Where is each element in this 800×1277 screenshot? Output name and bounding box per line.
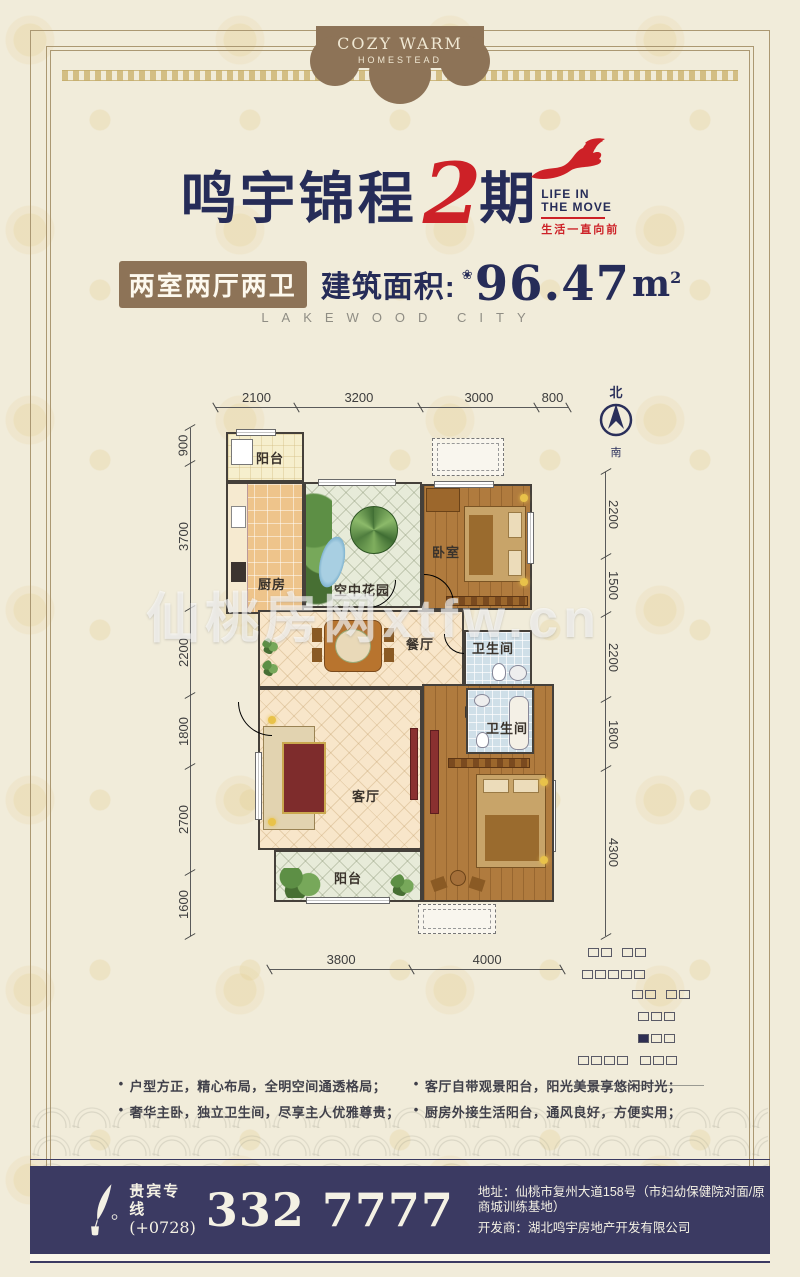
pillow — [508, 512, 522, 538]
site-plan — [578, 948, 710, 1086]
tv-cabinet — [410, 728, 418, 800]
title-side: LIFE IN THE MOVE 生活一直向前 — [541, 145, 619, 243]
feature-item: •厨房外接生活阳台，通风良好，方便实用； — [414, 1102, 682, 1121]
dim-left: 900 3700 2200 1800 2700 1600 — [170, 428, 196, 936]
subtitle-en: LAKEWOOD CITY — [0, 310, 800, 325]
bedside-lamp — [520, 494, 528, 502]
dim-label: 4300 — [606, 838, 621, 867]
room-label: 卧室 — [432, 542, 460, 561]
dim-label: 3000 — [421, 390, 537, 412]
dresser — [426, 488, 460, 512]
compass-north-label: 北 — [592, 382, 640, 401]
ac-unit-bottom — [418, 904, 496, 934]
chair — [430, 876, 447, 892]
blanket — [469, 515, 493, 575]
quill-icon — [88, 1175, 119, 1245]
dim-label: 2700 — [176, 805, 191, 834]
badge-line1: COZY WARM — [316, 26, 484, 53]
pillow — [483, 779, 509, 793]
phone-number: 332 7777 — [206, 1183, 454, 1237]
dim-label: 2200 — [606, 500, 621, 529]
floor-lamp — [268, 818, 276, 826]
balcony-plants — [278, 868, 322, 898]
blanket — [485, 815, 539, 861]
dim-label: 3700 — [176, 522, 191, 551]
garden-pinwheel-plant — [350, 506, 398, 554]
address-line: 地址：仙桃市复州大道158号（市妇幼保健院对面/原商城训练基地） — [478, 1185, 770, 1215]
dim-bottom: 3800 4000 — [270, 952, 562, 974]
area-unit-sup: 2 — [670, 268, 681, 287]
badge-line2: HOMESTEAD — [316, 55, 484, 65]
dim-label: 900 — [175, 435, 190, 457]
layout-badge: 两室两厅两卫 — [119, 261, 307, 308]
bed — [464, 506, 526, 582]
washbasin — [474, 694, 490, 707]
bedside-lamp — [540, 856, 548, 864]
room-label: 阳台 — [334, 868, 362, 887]
title-row: 鸣宇锦程 2 期 LIFE IN THE MOVE 生活一直向前 — [0, 148, 800, 240]
vip-label: 贵宾专线 — [129, 1183, 196, 1219]
area-value: 96.47 — [475, 256, 630, 312]
feature-list: •户型方正，精心布局，全明空间通透格局； •奢华主卧，独立卫生间，尽享主人优雅尊… — [0, 1076, 800, 1121]
brand-badge: COZY WARM HOMESTEAD — [316, 26, 484, 68]
site-row — [582, 970, 645, 979]
ac-unit-top — [432, 438, 504, 476]
kitchen-sink — [231, 506, 246, 528]
dim-top: 2100 3200 3000 800 — [216, 390, 568, 412]
pillow — [513, 779, 539, 793]
dim-label: 3800 — [270, 952, 412, 974]
feature-item: •客厅自带观景阳台，阳光美景享悠闲时光； — [414, 1076, 682, 1095]
footer-info: 地址：仙桃市复州大道158号（市妇幼保健院对面/原商城训练基地） 开发商：湖北鸣… — [478, 1185, 770, 1236]
dim-label: 1600 — [176, 890, 191, 919]
phase-number: 2 — [423, 164, 481, 224]
washing-machine — [231, 439, 253, 465]
room-balcony-top: 阳台 — [226, 432, 304, 482]
cabinet — [430, 730, 439, 814]
bullet-icon: • — [119, 1076, 124, 1091]
window — [434, 481, 494, 488]
feature-item: •户型方正，精心布局，全明空间通透格局； — [119, 1076, 400, 1095]
feature-text: 户型方正，精心布局，全明空间通透格局； — [130, 1076, 387, 1095]
feature-column: •户型方正，精心布局，全明空间通透格局； •奢华主卧，独立卫生间，尽享主人优雅尊… — [119, 1076, 400, 1121]
developer-line: 开发商：湖北鸣宇房地产开发有限公司 — [478, 1221, 770, 1236]
flower-icon: ❀ — [462, 267, 473, 283]
potted-plant — [262, 660, 278, 676]
feature-item: •奢华主卧，独立卫生间，尽享主人优雅尊贵； — [119, 1102, 400, 1121]
floor-plan: 阳台 厨房 空中花园 卧室 餐厅 — [218, 424, 558, 938]
bullet-icon: • — [414, 1076, 419, 1091]
slogan-en-line2: THE MOVE — [541, 201, 612, 214]
spec-row: 两室两厅两卫 建筑面积: ❀ 96.47 m2 — [0, 256, 800, 312]
site-row — [632, 990, 690, 999]
tea-table — [450, 870, 466, 886]
chair — [468, 876, 485, 892]
room-living: 客厅 — [258, 688, 422, 850]
dim-label: 1800 — [176, 717, 191, 746]
site-block-highlight — [638, 1034, 649, 1043]
bed — [476, 774, 546, 868]
dim-label: 800 — [537, 390, 568, 412]
room-label: 阳台 — [256, 448, 284, 467]
balcony-plant-pot — [390, 874, 414, 896]
dim-label: 4000 — [412, 952, 562, 974]
dim-label: 3200 — [297, 390, 421, 412]
horse-logo-icon — [527, 137, 609, 189]
entry-door-arc — [238, 702, 272, 736]
watermark: 仙桃房网xtfw.cn — [146, 574, 601, 653]
compass-icon — [597, 401, 635, 439]
slogan-cn: 生活一直向前 — [541, 221, 619, 237]
vip-block: 贵宾专线 (+0728) — [129, 1183, 196, 1237]
dim-label: 2200 — [606, 643, 621, 672]
project-name: 鸣宇锦程 — [181, 154, 417, 235]
feature-text: 客厅自带观景阳台，阳光美景享悠闲时光； — [425, 1076, 682, 1095]
feature-column: •客厅自带观景阳台，阳光美景享悠闲时光； •厨房外接生活阳台，通风良好，方便实用… — [414, 1076, 682, 1121]
poster-body: { "badge": {"line1": "COZY WARM", "line2… — [0, 0, 800, 1277]
area-unit-m: m — [632, 263, 670, 305]
feature-text: 厨房外接生活阳台，通风良好，方便实用； — [425, 1102, 682, 1121]
room-balcony-bottom: 阳台 — [274, 850, 422, 902]
site-row — [588, 948, 646, 957]
window — [236, 429, 276, 436]
room-bath-mid: 卫生间 — [466, 688, 534, 754]
area-unit: m2 — [632, 263, 681, 305]
dim-label: 1500 — [606, 571, 621, 600]
pillow — [508, 550, 522, 576]
toilet — [492, 663, 506, 681]
window — [255, 752, 262, 820]
dim-right: 2200 1500 2200 1800 4300 — [600, 472, 626, 936]
feature-text: 奢华主卧，独立卫生间，尽享主人优雅尊贵； — [130, 1102, 400, 1121]
rug — [282, 742, 326, 814]
washbasin — [509, 665, 527, 681]
slogan-rule — [541, 217, 605, 219]
window — [306, 897, 390, 904]
area-label: 建筑面积: — [321, 262, 456, 306]
bullet-icon: • — [119, 1102, 124, 1117]
site-row — [638, 1034, 675, 1043]
footer-bar: 贵宾专线 (+0728) 332 7777 地址：仙桃市复州大道158号（市妇幼… — [30, 1166, 770, 1254]
wardrobe — [448, 758, 530, 768]
dim-label: 2100 — [216, 390, 297, 412]
site-row — [638, 1012, 675, 1021]
bullet-icon: • — [414, 1102, 419, 1117]
compass: 北 南 — [592, 382, 640, 460]
site-row — [578, 1056, 677, 1065]
vip-code: (+0728) — [129, 1219, 196, 1237]
bedside-lamp — [540, 778, 548, 786]
dim-label: 1800 — [606, 720, 621, 749]
window — [318, 479, 396, 486]
footer-underline — [30, 1254, 770, 1263]
compass-south-label: 南 — [592, 444, 640, 460]
room-label: 客厅 — [352, 786, 380, 805]
room-label: 卫生间 — [486, 718, 528, 737]
window — [527, 512, 534, 564]
